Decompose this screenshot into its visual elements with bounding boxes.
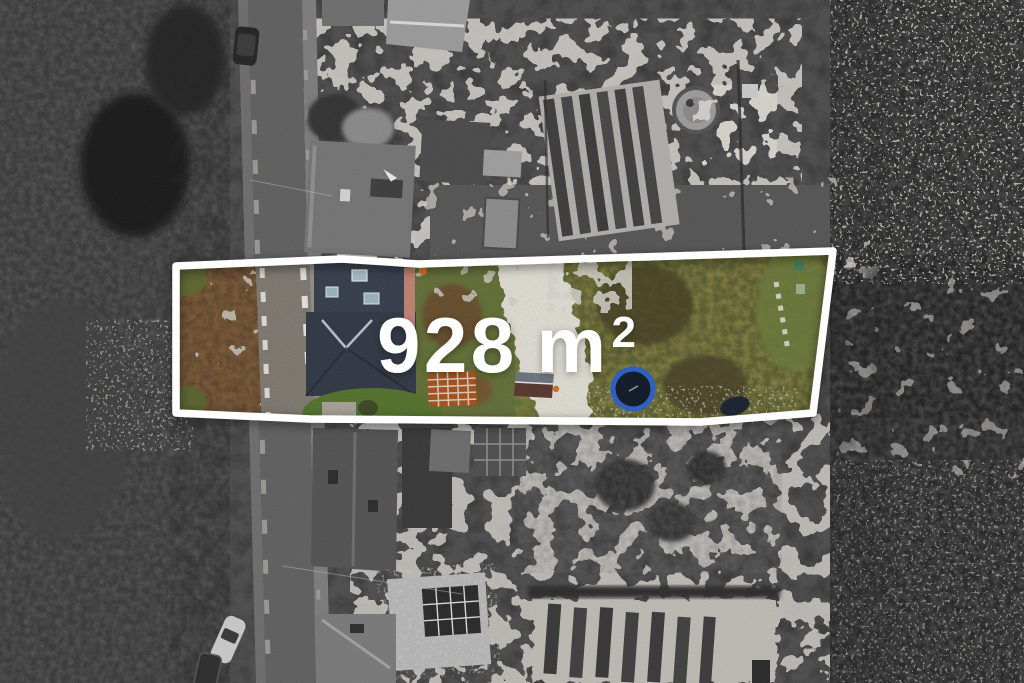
area-value: 928 — [377, 301, 518, 389]
aerial-photo: 928m2 — [0, 0, 1024, 683]
aerial-photo-stage: 928m2 — [0, 0, 1024, 683]
area-label: 928m2 — [377, 301, 636, 389]
area-superscript: 2 — [612, 308, 636, 357]
area-unit: m — [537, 301, 610, 389]
